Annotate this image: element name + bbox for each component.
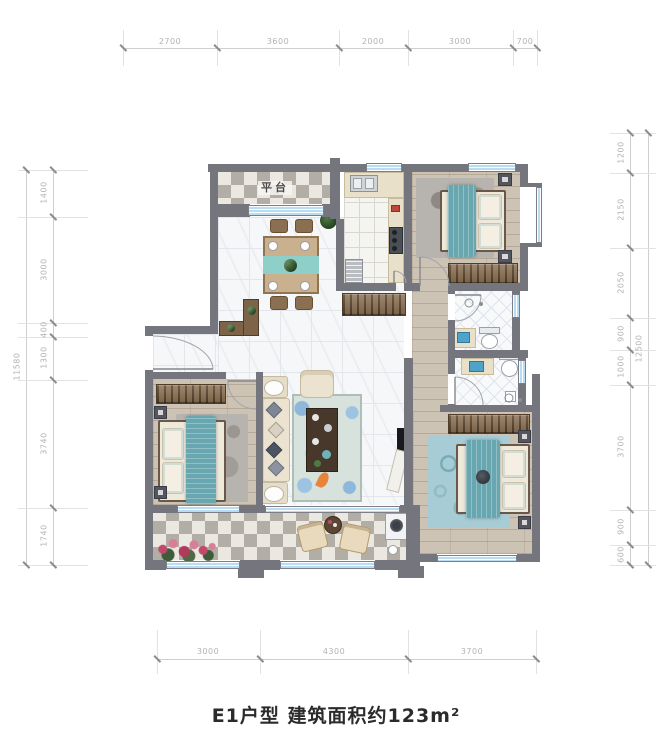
wall: [145, 372, 226, 379]
dim-label-total: 12500: [635, 329, 644, 369]
dim-label: 2700: [150, 37, 190, 46]
nightstand: [154, 406, 167, 419]
window-bedroom-sw: [177, 505, 240, 513]
balcony-flowers: [155, 533, 220, 561]
wardrobe-ne: [448, 263, 518, 284]
dim-label-total: 11580: [13, 347, 22, 387]
dim-label: 3000: [40, 250, 49, 290]
coffee-table-item: [312, 414, 319, 421]
bed-sw-blanket: [186, 416, 216, 504]
nightstand-top: [522, 520, 527, 525]
toilet-bowl: [501, 360, 518, 377]
dim-label: 3700: [452, 647, 492, 656]
sink-guest: [457, 332, 470, 343]
wall: [400, 505, 406, 513]
wall: [448, 291, 455, 294]
dim-label: 3000: [188, 647, 228, 656]
plate: [268, 281, 278, 291]
dim-label: 3700: [617, 427, 626, 467]
pillow: [478, 223, 502, 249]
window-kitchen: [366, 163, 402, 172]
wall: [256, 372, 263, 505]
wall: [145, 370, 153, 510]
nightstand: [498, 250, 512, 263]
wall: [448, 283, 528, 291]
dim-ext: [260, 630, 261, 674]
burner: [392, 238, 397, 243]
dim-label: 2150: [617, 190, 626, 230]
toilet-bowl: [481, 334, 498, 349]
window-bedroom-ne: [468, 163, 516, 172]
nightstand-top: [502, 254, 508, 259]
pillow: [502, 482, 526, 510]
window-balcony-2: [280, 561, 375, 569]
shower-drain: [505, 391, 516, 402]
burner: [392, 230, 397, 235]
sink-master: [469, 361, 484, 372]
nightstand: [154, 486, 167, 499]
wall: [145, 326, 153, 336]
window-bedroom-se: [437, 555, 517, 562]
dim-label: 4300: [314, 647, 354, 656]
dimension-line-bottom: [157, 659, 536, 660]
washer-drum: [390, 519, 403, 532]
side-table-top: [264, 486, 284, 502]
dim-label: 3600: [258, 37, 298, 46]
wall: [412, 283, 420, 291]
table-centerpiece-plant: [284, 259, 297, 272]
coffee-table-plant: [314, 460, 321, 467]
wall: [240, 505, 265, 513]
armchair: [300, 370, 334, 398]
wall: [210, 204, 250, 217]
dim-label: 3000: [440, 37, 480, 46]
wall: [532, 374, 540, 562]
burner: [392, 246, 397, 251]
side-table-top: [264, 380, 284, 396]
nightstand-top: [158, 410, 163, 415]
wall: [152, 505, 177, 513]
bay-window-bedroom-ne: [536, 187, 542, 243]
dimension-line-left-total: [26, 170, 27, 565]
wall: [520, 247, 528, 291]
dimension-line-right-total: [648, 133, 649, 565]
floor-entry: [153, 334, 218, 372]
wall: [406, 505, 420, 565]
wall: [404, 164, 412, 291]
refrigerator: [345, 259, 363, 283]
plate: [268, 241, 278, 251]
hallway-cabinet: [342, 293, 406, 316]
wall: [448, 350, 528, 358]
dim-label: 1740: [40, 516, 49, 556]
balcony-chair: [338, 522, 371, 554]
dim-label: 2000: [353, 37, 393, 46]
plate: [300, 241, 310, 251]
nightstand: [518, 430, 531, 443]
cabinet-plant: [227, 324, 235, 332]
wall: [418, 554, 437, 562]
window-bath-master: [518, 360, 526, 384]
wall: [336, 219, 344, 291]
kitchen-small-appliance: [391, 205, 400, 212]
tv: [397, 428, 404, 452]
wall: [338, 283, 396, 291]
sink-basin: [353, 178, 362, 189]
balcony-table-item: [333, 523, 337, 527]
page-title: E1户型 建筑面积约123m²: [0, 701, 672, 728]
toilet-tank: [479, 327, 500, 334]
coffee-table-item: [322, 450, 331, 459]
dining-chair: [295, 219, 313, 233]
pillow: [162, 428, 184, 460]
wall: [145, 326, 218, 334]
wall-pier: [238, 566, 264, 578]
nightstand-top: [502, 177, 508, 182]
dim-label: 600: [617, 535, 626, 575]
dim-ext: [157, 630, 158, 674]
wall-tv: [404, 358, 413, 505]
wall: [322, 204, 340, 217]
window-dining: [248, 205, 324, 216]
dim-ext: [408, 630, 409, 674]
pillow: [502, 450, 526, 478]
floor-plan-page: 平台 2700 3600 2000 3000 700 3000 4300 370…: [0, 0, 672, 747]
dining-chair: [270, 296, 288, 310]
wall: [210, 164, 218, 334]
sliding-door-balcony: [265, 506, 400, 513]
wall-pier: [398, 566, 424, 578]
bed-decor-knob: [476, 470, 490, 484]
nightstand: [518, 516, 531, 529]
dimension-line-top: [123, 48, 537, 49]
coffee-table-item: [312, 438, 319, 445]
dim-label: 1000: [617, 347, 626, 387]
dim-label: 1400: [40, 173, 49, 213]
dim-label: 1300: [40, 338, 49, 378]
wall: [448, 320, 455, 374]
plate: [300, 281, 310, 291]
bed-ne-blanket: [448, 185, 476, 257]
dim-label: 700: [505, 37, 545, 46]
nightstand: [498, 173, 512, 186]
cabinet-plant: [247, 306, 256, 315]
shoe-cabinet: [243, 299, 259, 336]
dim-label: 2050: [617, 263, 626, 303]
balcony-table-item: [328, 520, 332, 524]
window-bath-guest: [512, 294, 520, 318]
window-balcony-1: [166, 561, 240, 569]
sink-basin: [365, 178, 374, 189]
nightstand-top: [522, 434, 527, 439]
floor-drain: [388, 545, 398, 555]
nightstand-top: [158, 490, 163, 495]
wall: [517, 554, 540, 562]
wardrobe-sw: [156, 384, 226, 404]
dim-label: 1200: [617, 133, 626, 173]
dim-ext: [536, 630, 537, 674]
coffee-table: [306, 408, 338, 472]
dining-chair: [270, 219, 288, 233]
dining-chair: [295, 296, 313, 310]
wall: [440, 405, 538, 412]
dim-label: 3740: [40, 424, 49, 464]
pillow: [478, 194, 502, 220]
platform-label: 平台: [258, 181, 292, 195]
coffee-table-item: [324, 424, 332, 432]
wall: [145, 560, 166, 570]
